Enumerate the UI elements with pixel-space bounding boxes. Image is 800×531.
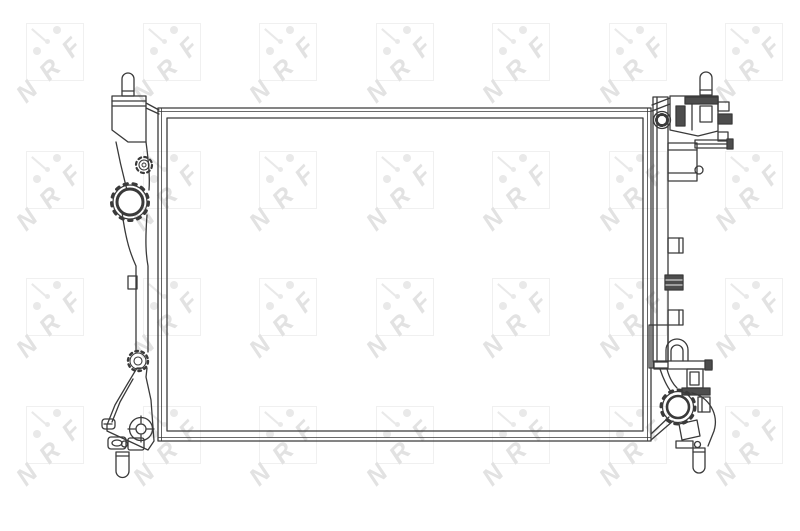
left-filler-neck-gear [112,184,149,221]
radiator-core-frame [158,108,651,441]
right-bottom-mounting-pin [693,448,705,473]
radiator-product-image: NRFNRFNRFNRFNRFNRFNRFNRFNRFNRFNRFNRFNRFN… [0,0,800,531]
right-mid-tabs [665,238,683,325]
left-top-bracket [112,96,159,142]
radiator-technical-drawing [0,0,800,531]
left-bottom-bracket [102,368,154,450]
right-upper-box [668,143,703,181]
left-top-mounting-pin [122,73,134,96]
right-tank-strip [653,97,668,362]
right-top-mounting-pin [700,72,712,95]
hex-bolt-icon [136,157,152,173]
left-bottom-mounting-pin [116,452,129,478]
horseshoe-clip [666,339,688,361]
right-connector-tabs [695,102,733,149]
right-bottom-casing [651,393,715,448]
